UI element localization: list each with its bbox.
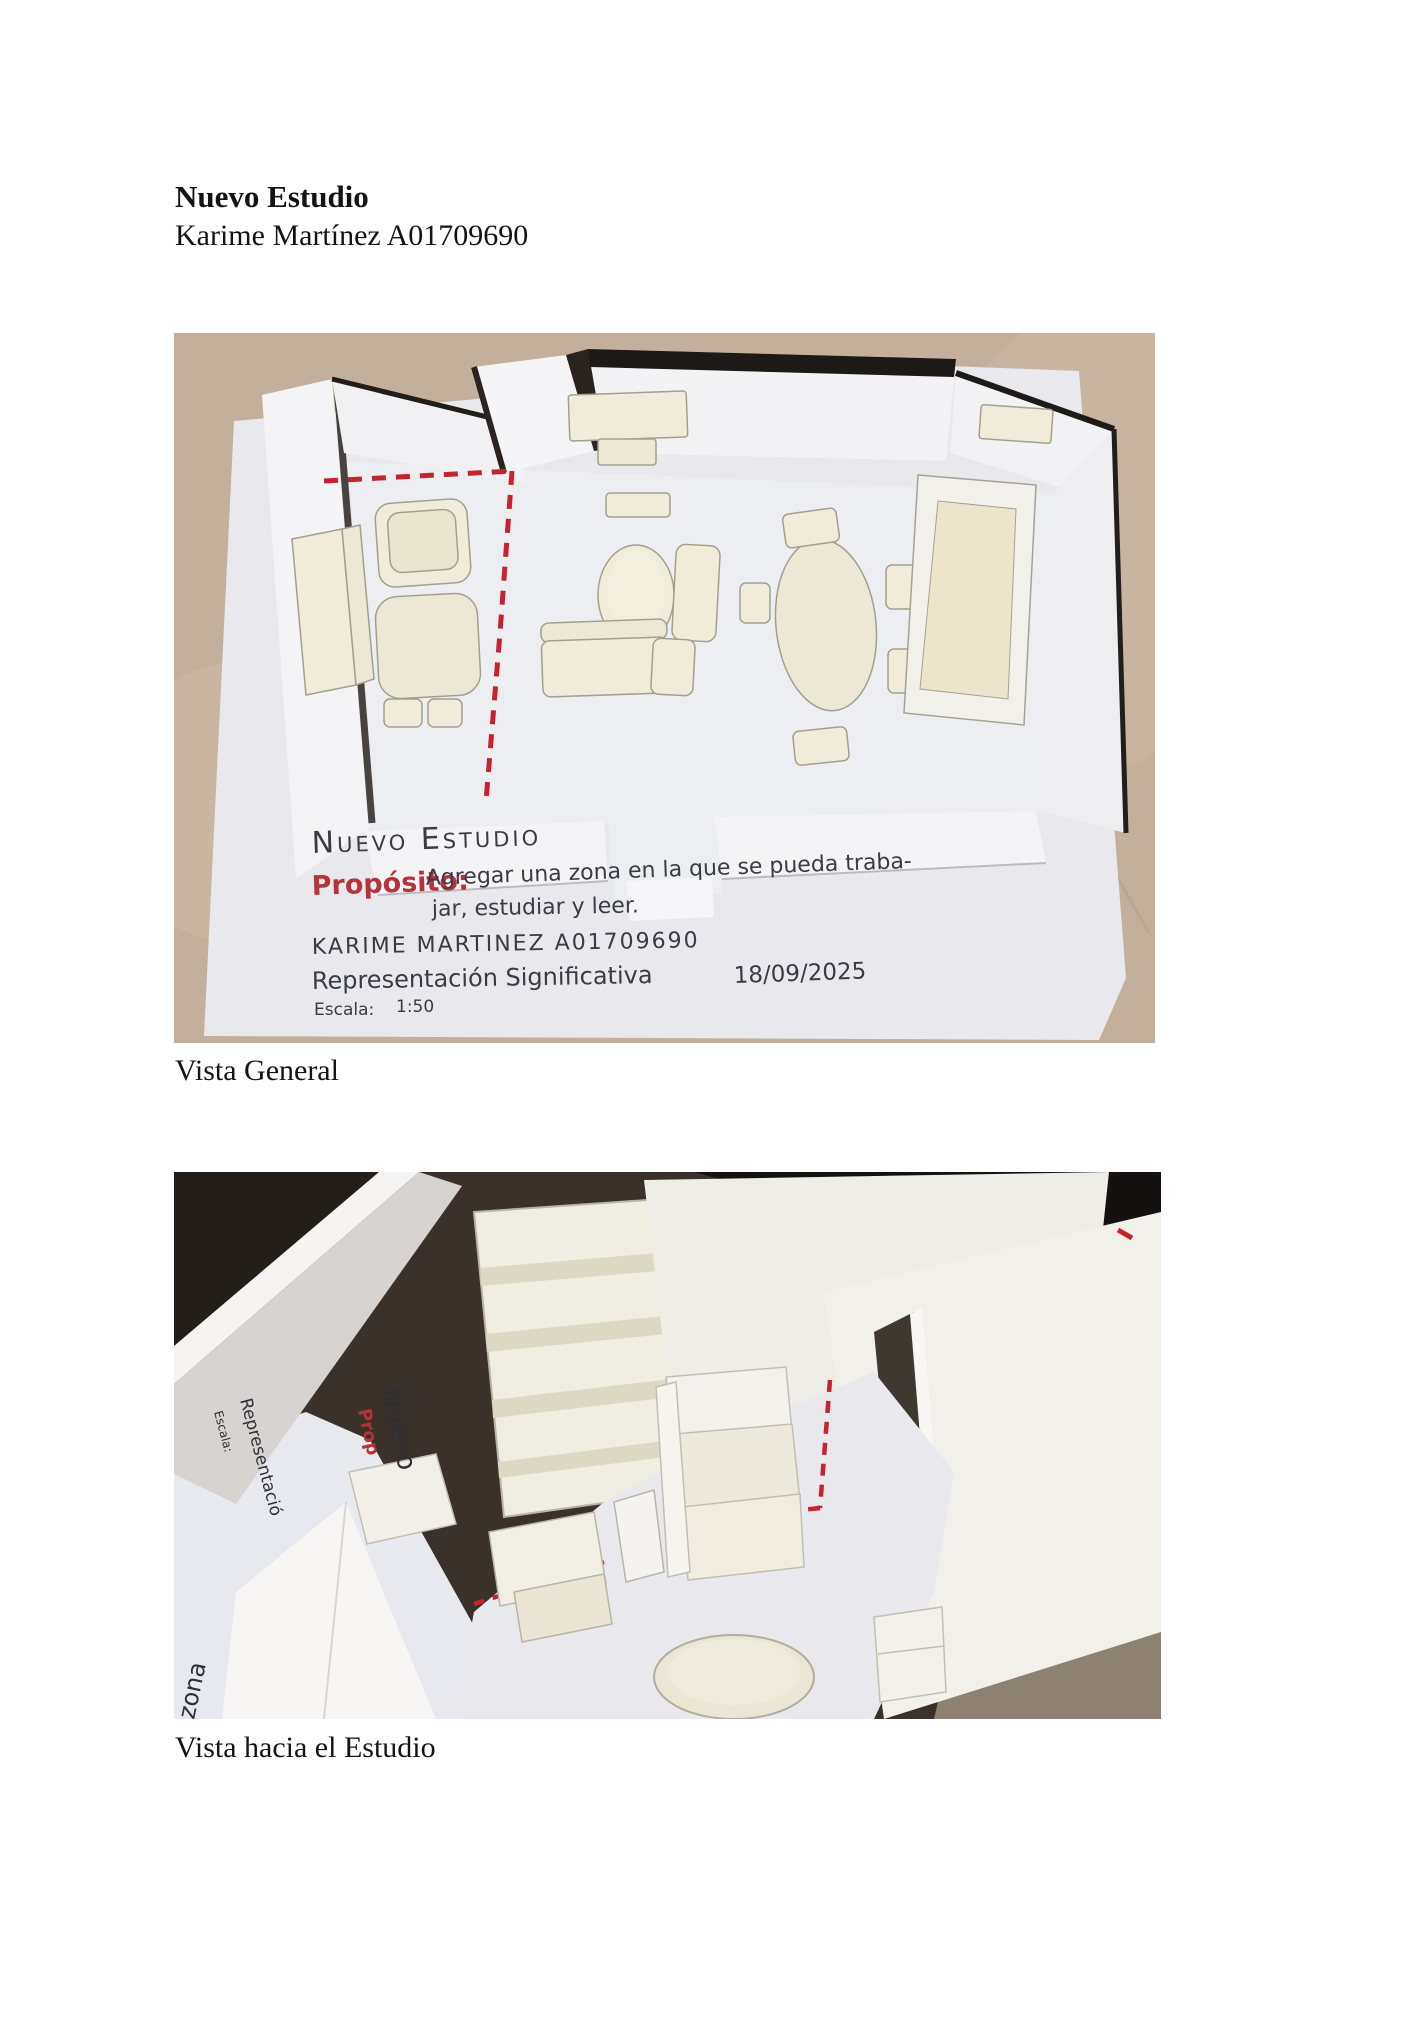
dining-seat-left-low xyxy=(651,638,696,696)
figure1-caption: Vista General xyxy=(175,1054,339,1088)
tv xyxy=(598,439,656,465)
document-page: Nuevo Estudio Karime Martínez A01709690 xyxy=(0,0,1428,2028)
p2-console-right xyxy=(874,1607,946,1702)
photo-vista-estudio: Nuevo Prop Representació Escala: zona xyxy=(174,1172,1161,1719)
center-sofa xyxy=(541,637,669,697)
studio-rug xyxy=(374,592,481,699)
document-author: Karime Martínez A01709690 xyxy=(175,219,528,253)
photo-vista-estudio-svg: Nuevo Prop Representació Escala: zona xyxy=(174,1172,1161,1719)
photo-vista-general-svg: Nuevo Estudio Propósito: Agregar una zon… xyxy=(174,333,1155,1043)
document-title: Nuevo Estudio xyxy=(175,179,369,215)
studio-stool xyxy=(384,699,422,727)
dining-chair-top xyxy=(782,507,840,548)
dining-chair-bottom xyxy=(792,726,849,765)
handwritten-scale-value: 1:50 xyxy=(396,997,434,1017)
handwritten-purpose-line2: jar, estudiar y leer. xyxy=(431,893,639,922)
p2-sofa-base xyxy=(682,1494,804,1580)
handwritten-representation: Representación Significativa xyxy=(312,961,653,995)
dining-chair-left-small xyxy=(740,583,770,623)
handwritten-date: 18/09/2025 xyxy=(733,958,866,989)
photo-vista-general: Nuevo Estudio Propósito: Agregar una zon… xyxy=(174,333,1155,1043)
figure2-caption: Vista hacia el Estudio xyxy=(175,1731,436,1765)
studio-stool-2 xyxy=(428,699,462,727)
dining-bench-left xyxy=(672,544,721,642)
tv-console xyxy=(568,391,688,441)
console-bench xyxy=(606,493,670,517)
handwritten-scale-label: Escala: xyxy=(314,1000,374,1020)
side-table-top-right xyxy=(979,405,1053,444)
